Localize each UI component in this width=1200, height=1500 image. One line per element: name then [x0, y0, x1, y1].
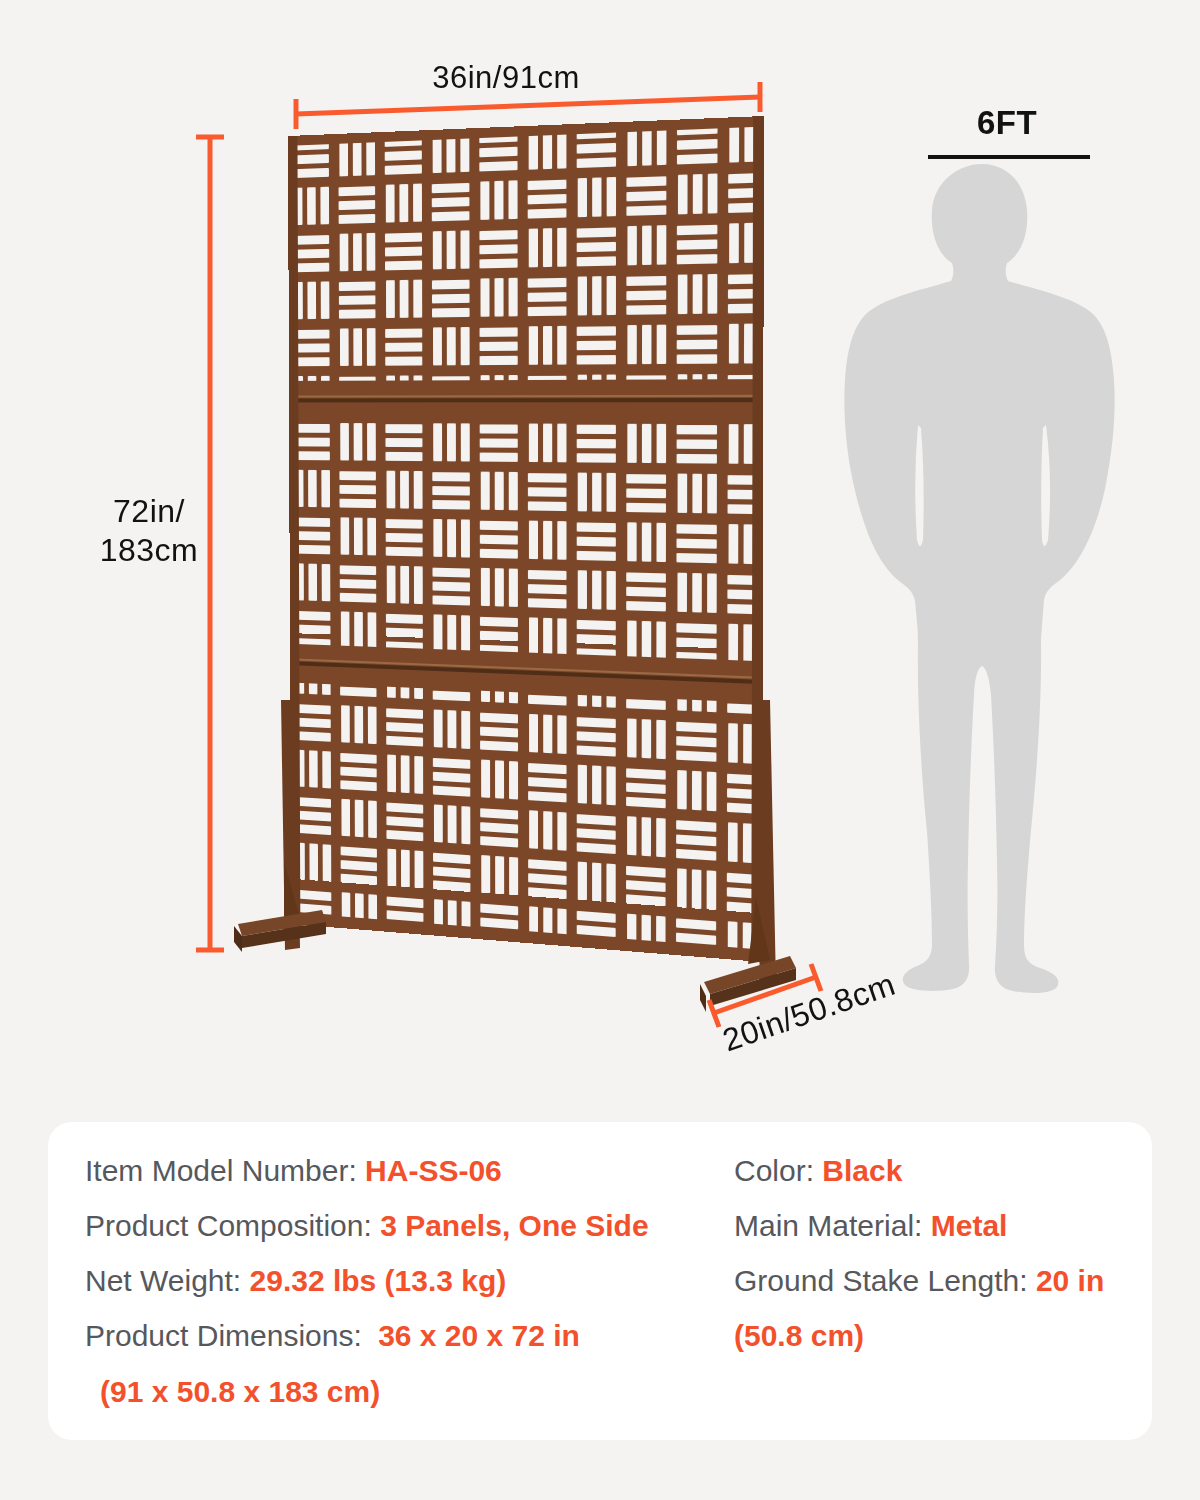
- spec-row-material: Main Material: Metal: [734, 1208, 1007, 1244]
- right-stand-foot: [700, 700, 796, 1012]
- spec-label: Color:: [734, 1154, 822, 1187]
- spec-value: 20 in: [1036, 1264, 1104, 1297]
- spec-row-weight: Net Weight: 29.32 lbs (13.3 kg): [85, 1263, 506, 1299]
- height-label-line2: 183cm: [64, 531, 234, 570]
- spec-row-stake-length-metric: (50.8 cm): [734, 1318, 864, 1354]
- spec-card: Item Model Number: HA-SS-06 Product Comp…: [48, 1122, 1152, 1440]
- spec-row-model: Item Model Number: HA-SS-06: [85, 1153, 502, 1189]
- spec-row-dimensions: Product Dimensions: 36 x 20 x 72 in: [85, 1318, 580, 1354]
- spec-value: Black: [822, 1154, 902, 1187]
- spec-row-composition: Product Composition: 3 Panels, One Side: [85, 1208, 649, 1244]
- spec-label: Net Weight:: [85, 1264, 250, 1297]
- spec-row-dimensions-metric: (91 x 50.8 x 183 cm): [85, 1374, 380, 1410]
- person-silhouette: [844, 164, 1114, 993]
- product-dimension-diagram: 36in/91cm 72in/ 183cm 20in/50.8cm 6FT: [0, 0, 1200, 1100]
- spec-row-color: Color: Black: [734, 1153, 902, 1189]
- spec-value: HA-SS-06: [365, 1154, 502, 1187]
- spec-label: Ground Stake Length:: [734, 1264, 1036, 1297]
- left-stand-foot: [234, 700, 326, 952]
- spec-value: (50.8 cm): [734, 1319, 864, 1352]
- height-dimension-label: 72in/ 183cm: [64, 492, 234, 570]
- width-dimension-label: 36in/91cm: [346, 60, 666, 96]
- spec-value: Metal: [931, 1209, 1008, 1242]
- spec-label: Product Dimensions:: [85, 1319, 370, 1352]
- spec-label: Main Material:: [734, 1209, 931, 1242]
- spec-value: 36 x 20 x 72 in: [378, 1319, 580, 1352]
- spec-value: (91 x 50.8 x 183 cm): [100, 1375, 380, 1408]
- height-label-line1: 72in/: [64, 492, 234, 531]
- figure-height-label: 6FT: [922, 104, 1092, 142]
- spec-value: 29.32 lbs (13.3 kg): [250, 1264, 507, 1297]
- spec-label: Item Model Number:: [85, 1154, 365, 1187]
- spec-label: Product Composition:: [85, 1209, 380, 1242]
- spec-row-stake-length: Ground Stake Length: 20 in: [734, 1263, 1104, 1299]
- spec-value: 3 Panels, One Side: [380, 1209, 648, 1242]
